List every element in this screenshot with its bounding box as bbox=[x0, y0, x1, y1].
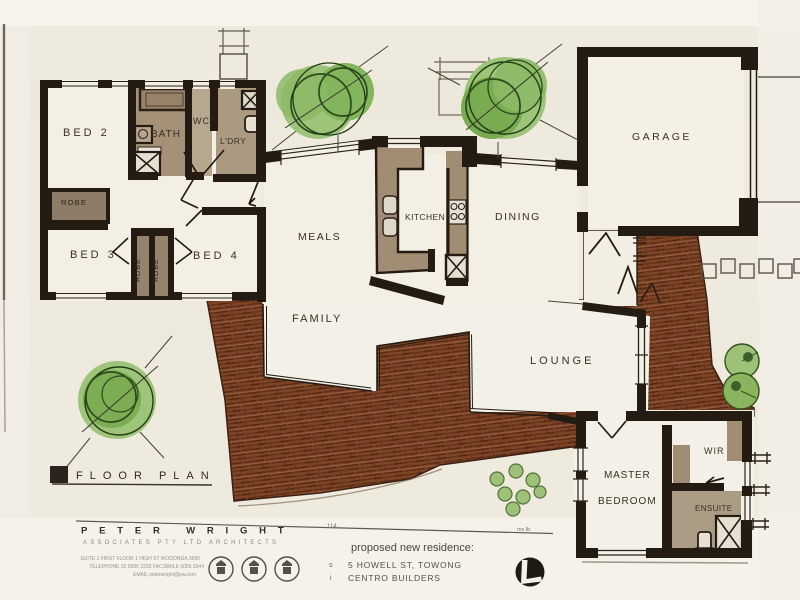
svg-text:DINING: DINING bbox=[495, 211, 541, 223]
svg-text:BATH: BATH bbox=[151, 129, 181, 140]
svg-text:BED 2: BED 2 bbox=[63, 127, 110, 139]
svg-text:SUITE 1 FIRST FLOOR 1 HIGH ST: SUITE 1 FIRST FLOOR 1 HIGH ST WODONGA 36… bbox=[80, 556, 200, 562]
svg-text:ENSUITE: ENSUITE bbox=[695, 504, 732, 513]
svg-text:ASSOCIATES PTY LTD ARCHITECTS: ASSOCIATES PTY LTD ARCHITECTS bbox=[83, 540, 279, 546]
svg-text:TELEPHONE 02 6056 2233 FACSIMI: TELEPHONE 02 6056 2233 FACSIMILE 6056 33… bbox=[89, 564, 204, 570]
svg-text:5 HOWELL ST, TOWONG: 5 HOWELL ST, TOWONG bbox=[348, 560, 462, 570]
svg-text:proposed new residence:: proposed new residence: bbox=[351, 542, 474, 554]
svg-text:KITCHEN: KITCHEN bbox=[405, 212, 445, 222]
svg-text:s: s bbox=[329, 562, 333, 569]
svg-text:WC: WC bbox=[193, 116, 210, 126]
svg-text:MEALS: MEALS bbox=[298, 231, 341, 243]
svg-text:EMAIL peterwright@pw.com: EMAIL peterwright@pw.com bbox=[133, 572, 196, 578]
svg-text:BED 3: BED 3 bbox=[70, 249, 117, 261]
svg-text:114: 114 bbox=[327, 524, 337, 530]
svg-text:ROBE: ROBE bbox=[153, 258, 160, 282]
svg-text:L'DRY: L'DRY bbox=[220, 136, 246, 146]
svg-text:ms lb: ms lb bbox=[517, 527, 530, 533]
svg-text:CENTRO BUILDERS: CENTRO BUILDERS bbox=[348, 573, 441, 583]
svg-text:FLOOR PLAN: FLOOR PLAN bbox=[76, 470, 216, 482]
svg-text:BEDROOM: BEDROOM bbox=[598, 496, 657, 507]
svg-text:WIR: WIR bbox=[704, 446, 725, 456]
svg-text:PETER WRIGHT: PETER WRIGHT bbox=[81, 526, 295, 537]
svg-text:FAMILY: FAMILY bbox=[292, 313, 342, 325]
svg-text:MASTER: MASTER bbox=[604, 470, 650, 481]
svg-text:LOUNGE: LOUNGE bbox=[530, 355, 594, 367]
svg-text:ROBE: ROBE bbox=[61, 198, 87, 207]
svg-text:ROBE: ROBE bbox=[135, 258, 142, 282]
svg-text:BED 4: BED 4 bbox=[193, 250, 240, 262]
svg-text:GARAGE: GARAGE bbox=[632, 131, 692, 143]
